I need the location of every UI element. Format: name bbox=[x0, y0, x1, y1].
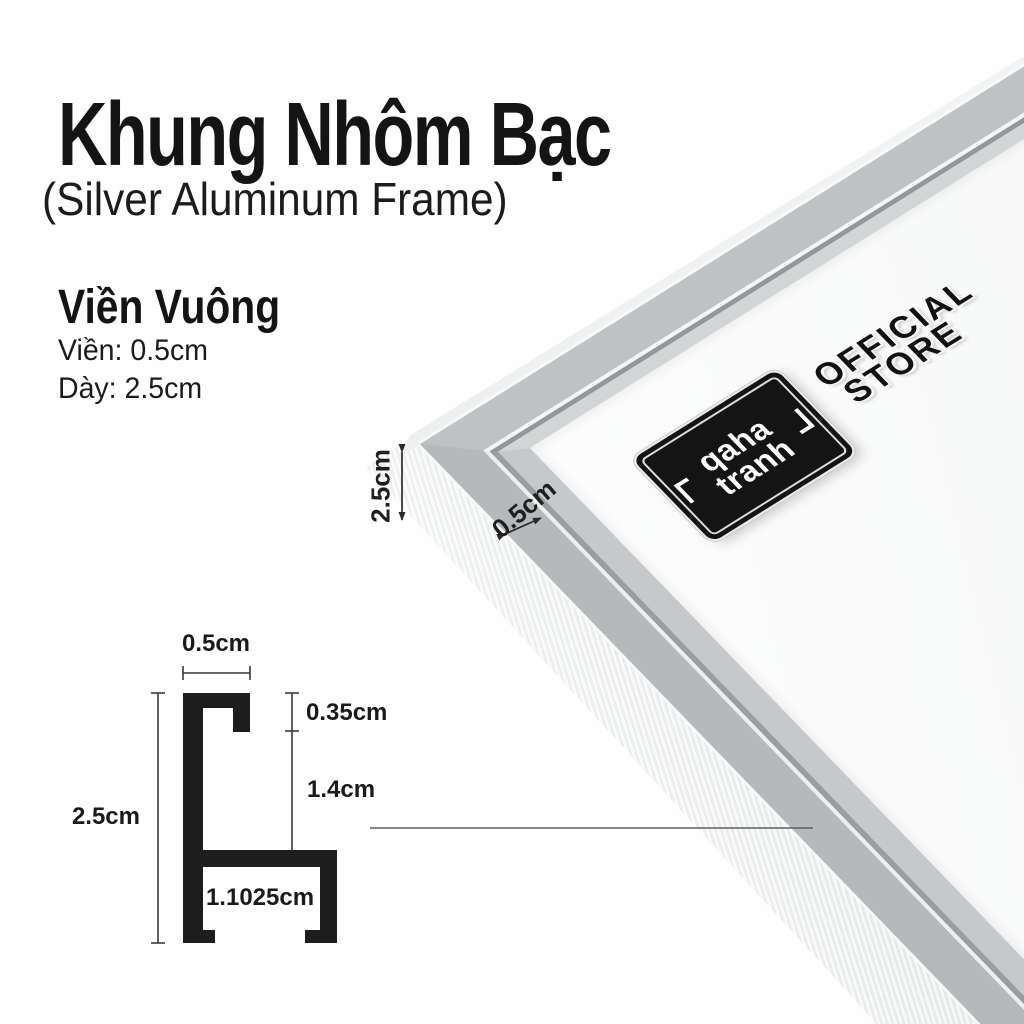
profile-right-foot bbox=[305, 930, 337, 943]
spec-depth: Dày: 2.5cm bbox=[58, 372, 202, 406]
logo-corner-bracket-left-icon bbox=[674, 478, 704, 504]
profile-left-foot bbox=[183, 930, 215, 943]
page-subtitle: (Silver Aluminum Frame) bbox=[42, 174, 508, 225]
dim-label-height: 2.5cm bbox=[56, 803, 140, 831]
dim-label-inner-depth: 1.4cm bbox=[307, 776, 375, 804]
profile-bottom-bar bbox=[183, 850, 337, 867]
photo-thickness-label: 2.5cm bbox=[366, 449, 397, 523]
profile-front-lip bbox=[233, 708, 250, 732]
spec-border-width: Viền: 0.5cm bbox=[58, 334, 208, 368]
dim-label-top-width: 0.5cm bbox=[180, 630, 252, 658]
brand-logo-line2: tranh bbox=[709, 434, 800, 500]
dim-label-channel-width: 1.1025cm bbox=[196, 884, 324, 912]
brand-logo-line1: qaha bbox=[691, 414, 777, 476]
dim-label-lip: 0.35cm bbox=[306, 699, 387, 727]
product-infographic: OFFICIAL STORE qaha tranh Khung Nhôm Bạc… bbox=[0, 0, 1024, 1024]
page-title: Khung Nhôm Bạc bbox=[58, 90, 611, 180]
logo-corner-bracket-right-icon bbox=[785, 408, 815, 434]
spec-heading: Viền Vuông bbox=[58, 280, 280, 335]
